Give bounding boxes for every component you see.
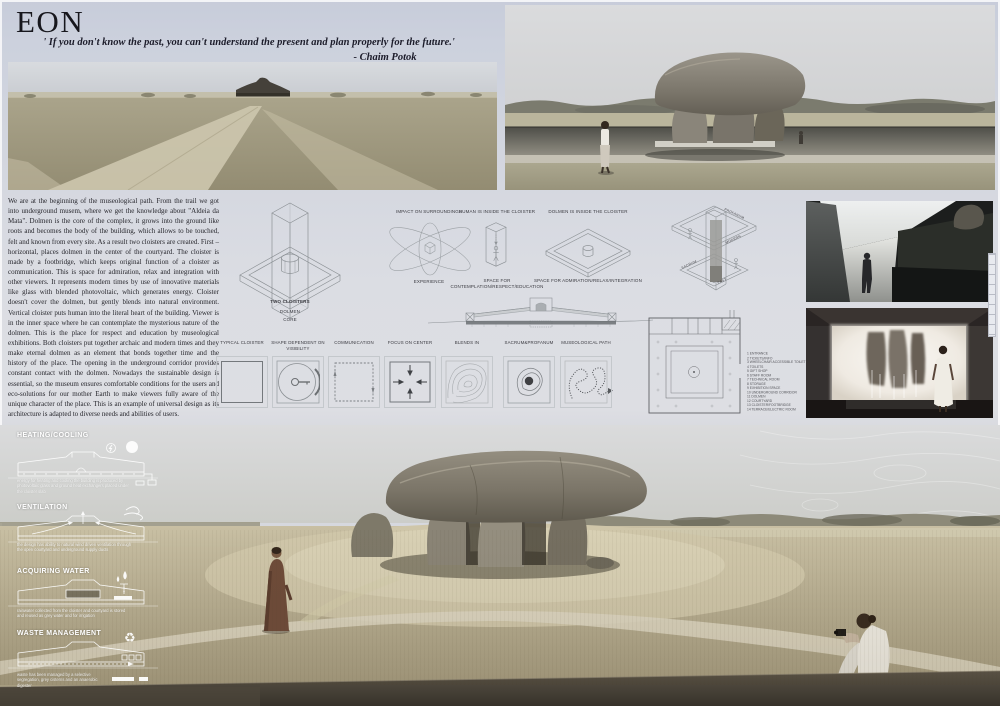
render-courtyard-view — [505, 5, 995, 190]
competition-board: EON ' If you don't know the past, you ca… — [0, 0, 1000, 706]
graphic-scale-bar — [988, 253, 996, 337]
cutaway-label-profanum: PROFANUM — [724, 207, 745, 220]
scale-bar-short — [139, 677, 148, 681]
waste-management-diagram: ♻ — [8, 628, 158, 674]
approach-view-art — [8, 62, 497, 190]
axon-sub-dolmen: DOLMEN — [244, 310, 337, 316]
impact-atom-diagram — [382, 220, 478, 278]
scheme-label: BLENDS IN — [439, 341, 494, 352]
ventilation-diagram — [8, 502, 158, 548]
horizontal-cloister-diagram — [542, 222, 634, 280]
tower-label-top: HUMAN IS INSIDE THE CLOISTER — [452, 210, 542, 216]
frame-label-top: DOLMEN IS INSIDE THE CLOISTER — [539, 210, 637, 216]
scheme-label: MUSEOLOGICAL PATH — [558, 341, 613, 352]
quote-text: ' If you don't know the past, you can't … — [10, 37, 488, 48]
cutaway-label-sacrum: SACRUM — [681, 259, 698, 270]
axon-sub-core: CORE — [244, 318, 337, 324]
courtyard-view-art — [505, 5, 995, 190]
system-waste-caption: waste has been managed by a selective se… — [17, 673, 112, 689]
distant-person-silhouette — [799, 131, 803, 144]
render-underground-corridor — [806, 201, 993, 302]
floor-plan — [646, 308, 743, 416]
recycle-icon: ♻ — [124, 630, 136, 645]
page-title: EON — [16, 4, 84, 40]
system-heating-title: HEATING/COOLING — [17, 432, 89, 439]
frame-caption: SPACE FOR ADMIRATION/RELAX/INTEGRATION — [532, 279, 645, 285]
render-approach-view — [8, 62, 497, 190]
axon-title: TWO CLOISTERS — [244, 300, 337, 306]
system-ventilation-caption: the design has ability to natural wind d… — [17, 543, 134, 554]
scale-bar-long — [112, 677, 134, 681]
project-description: We are at the beginning of the museologi… — [8, 196, 219, 419]
system-water-caption: rainwater collected from the cloister an… — [17, 609, 128, 620]
acquiring-water-diagram — [8, 566, 158, 612]
cutaway-axonometric: PROFANUM MODERN SACRUM PAST — [652, 198, 772, 303]
render-exhibition-room — [806, 308, 993, 418]
vertical-cloister-diagram — [475, 220, 517, 278]
system-heating-caption: energy for heating and cooling the build… — [17, 479, 135, 495]
scheme-museological-path: MUSEOLOGICAL PATH — [548, 341, 624, 404]
building-section-drawing — [428, 292, 653, 334]
